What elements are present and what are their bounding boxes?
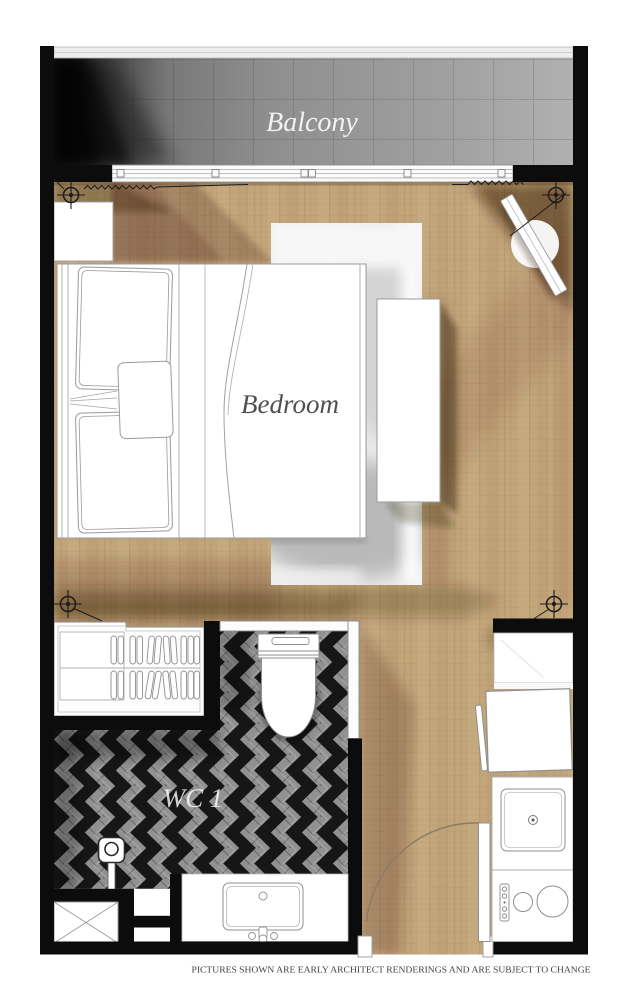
svg-text:Bedroom: Bedroom: [241, 389, 339, 419]
svg-text:PICTURES SHOWN ARE EARLY ARCHI: PICTURES SHOWN ARE EARLY ARCHITECT RENDE…: [192, 965, 591, 975]
svg-text:WC 1: WC 1: [163, 783, 224, 813]
svg-text:Balcony: Balcony: [266, 107, 358, 138]
